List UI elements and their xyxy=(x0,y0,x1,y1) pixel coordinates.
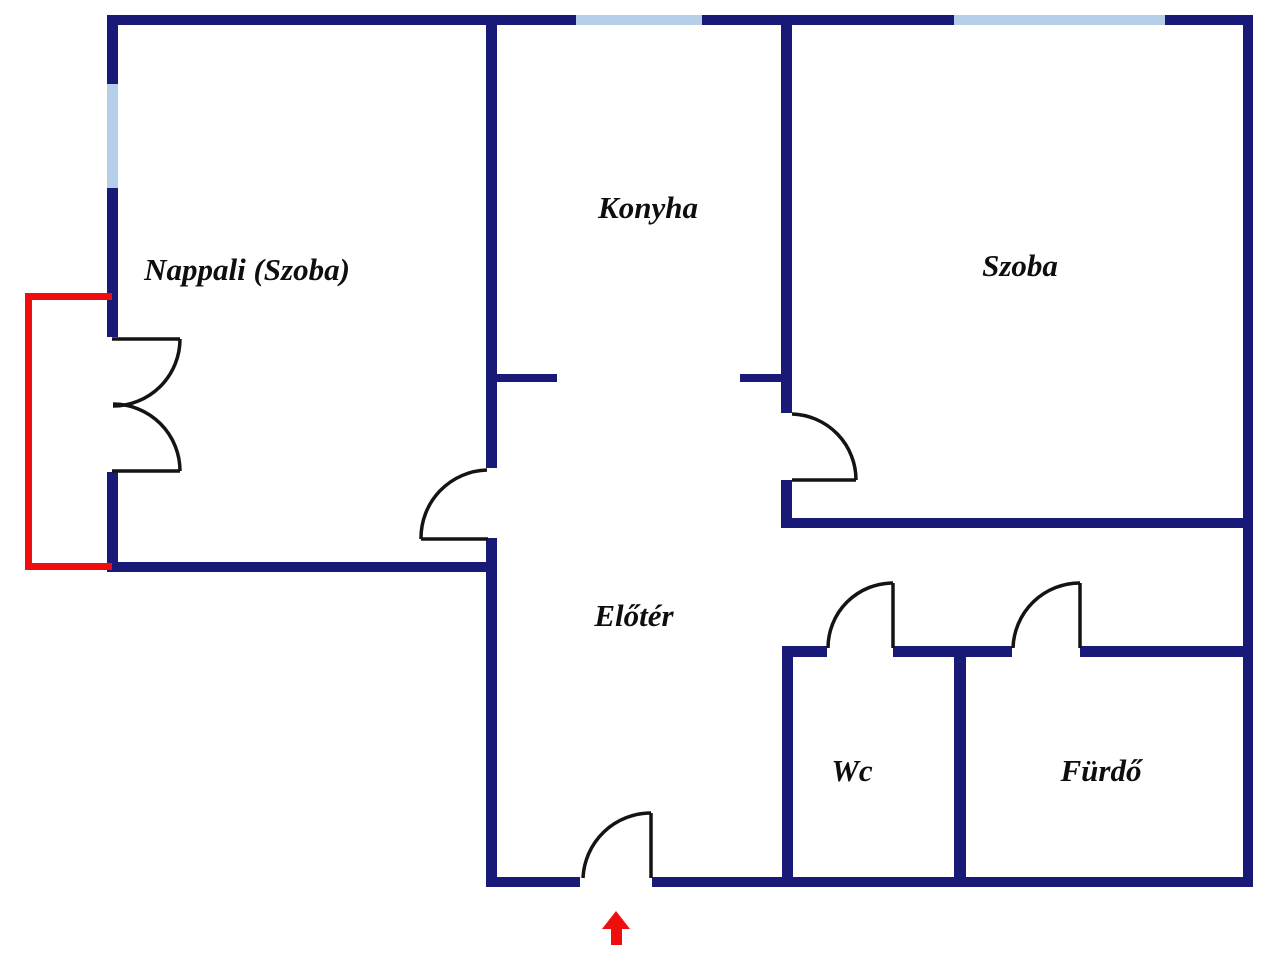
wc-left-wall xyxy=(782,646,793,887)
szoba-door xyxy=(792,414,856,480)
konyha-szoba-wall-a xyxy=(781,15,792,413)
room-label-nappali: Nappali (Szoba) xyxy=(143,252,350,287)
balcony-door-lower-swing-arc xyxy=(113,404,180,471)
window-konyha-top xyxy=(576,15,702,25)
top-wall-a xyxy=(107,15,576,25)
room-label-konyha: Konyha xyxy=(597,190,698,225)
left-wall-b xyxy=(107,188,118,337)
balcony-door-upper-swing-arc xyxy=(113,339,180,406)
konyha-stub-right xyxy=(740,374,782,382)
center-wall-a xyxy=(486,15,497,468)
top-wall-b xyxy=(702,15,954,25)
balcony-top xyxy=(25,293,112,300)
balcony-door-lower xyxy=(112,404,180,471)
entrance-door xyxy=(583,813,651,878)
room-labels: Nappali (Szoba) Konyha Szoba Előtér Wc F… xyxy=(143,190,1144,788)
balcony-left xyxy=(25,293,32,570)
entrance-arrow xyxy=(602,911,630,945)
right-wall xyxy=(1243,15,1253,887)
left-wall-a xyxy=(107,15,118,84)
konyha-stub-left xyxy=(497,374,557,382)
wc-furdo-divider xyxy=(954,657,966,887)
furdo-door-swing-arc xyxy=(1013,583,1080,648)
floorplan-drawing: Nappali (Szoba) Konyha Szoba Előtér Wc F… xyxy=(0,0,1280,960)
left-wall-c xyxy=(107,472,118,566)
bath-top-wall-b xyxy=(893,646,1012,657)
window-nappali-left xyxy=(107,84,118,188)
floorplan-page: Nappali (Szoba) Konyha Szoba Előtér Wc F… xyxy=(0,0,1280,960)
entrance-arrow-stem xyxy=(611,929,622,945)
window-szoba-top xyxy=(954,15,1165,25)
top-wall-c xyxy=(1165,15,1253,25)
room-label-furdo: Fürdő xyxy=(1060,753,1144,788)
balcony-bottom xyxy=(25,563,112,570)
wc-door-swing-arc xyxy=(828,583,893,648)
room-label-eloter: Előtér xyxy=(593,598,674,633)
szoba-door-swing-arc xyxy=(792,414,856,480)
bottom-wall-a xyxy=(486,877,580,887)
room-label-wc: Wc xyxy=(831,753,873,788)
bottom-wall-b xyxy=(652,877,1253,887)
bath-top-wall-c xyxy=(1080,646,1253,657)
nappali-door xyxy=(421,470,488,539)
balcony-door-upper xyxy=(112,339,180,406)
bath-top-wall-a xyxy=(782,646,827,657)
balcony-outline xyxy=(25,293,112,570)
nappali-door-swing-arc xyxy=(421,470,487,539)
windows-layer xyxy=(107,15,1165,188)
nappali-bottom-wall xyxy=(107,562,497,572)
szoba-bottom-wall xyxy=(781,518,1253,528)
entrance-arrow-head xyxy=(602,911,630,929)
wc-door xyxy=(828,583,893,648)
center-wall-b xyxy=(486,538,497,887)
furdo-door xyxy=(1013,583,1080,648)
entrance-door-swing-arc xyxy=(583,813,651,878)
room-label-szoba: Szoba xyxy=(982,248,1058,283)
